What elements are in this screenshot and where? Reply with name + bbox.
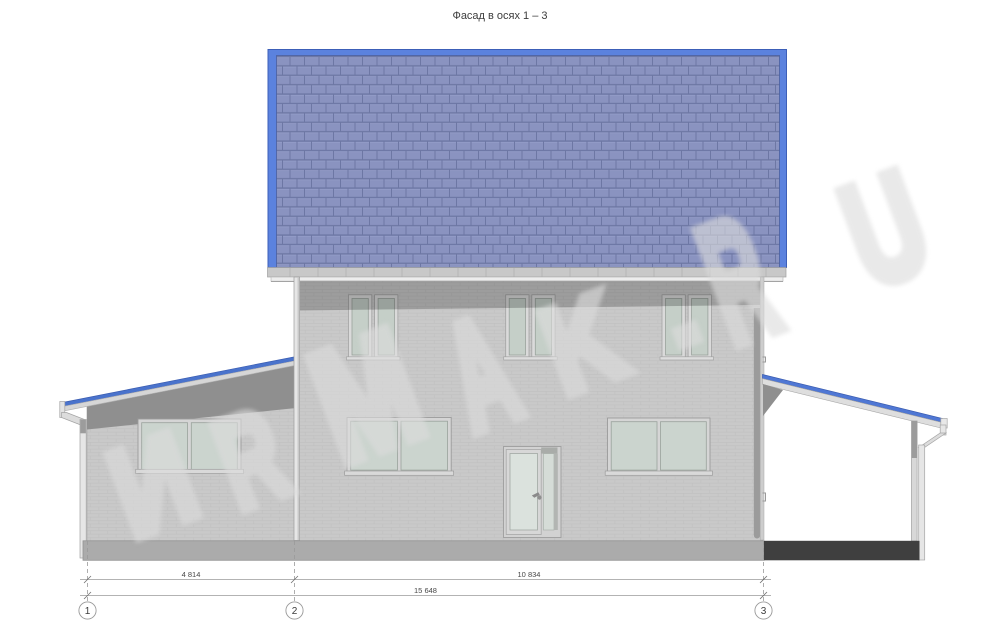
svg-text:3: 3 xyxy=(761,606,767,617)
svg-text:10 834: 10 834 xyxy=(518,570,541,579)
svg-text:15 648: 15 648 xyxy=(414,586,437,595)
svg-text:2: 2 xyxy=(292,606,298,617)
svg-text:U: U xyxy=(823,141,947,318)
svg-text:4 814: 4 814 xyxy=(182,570,201,579)
svg-text:1: 1 xyxy=(85,606,91,617)
svg-text:Фасад в осях 1 – 3: Фасад в осях 1 – 3 xyxy=(452,10,547,22)
